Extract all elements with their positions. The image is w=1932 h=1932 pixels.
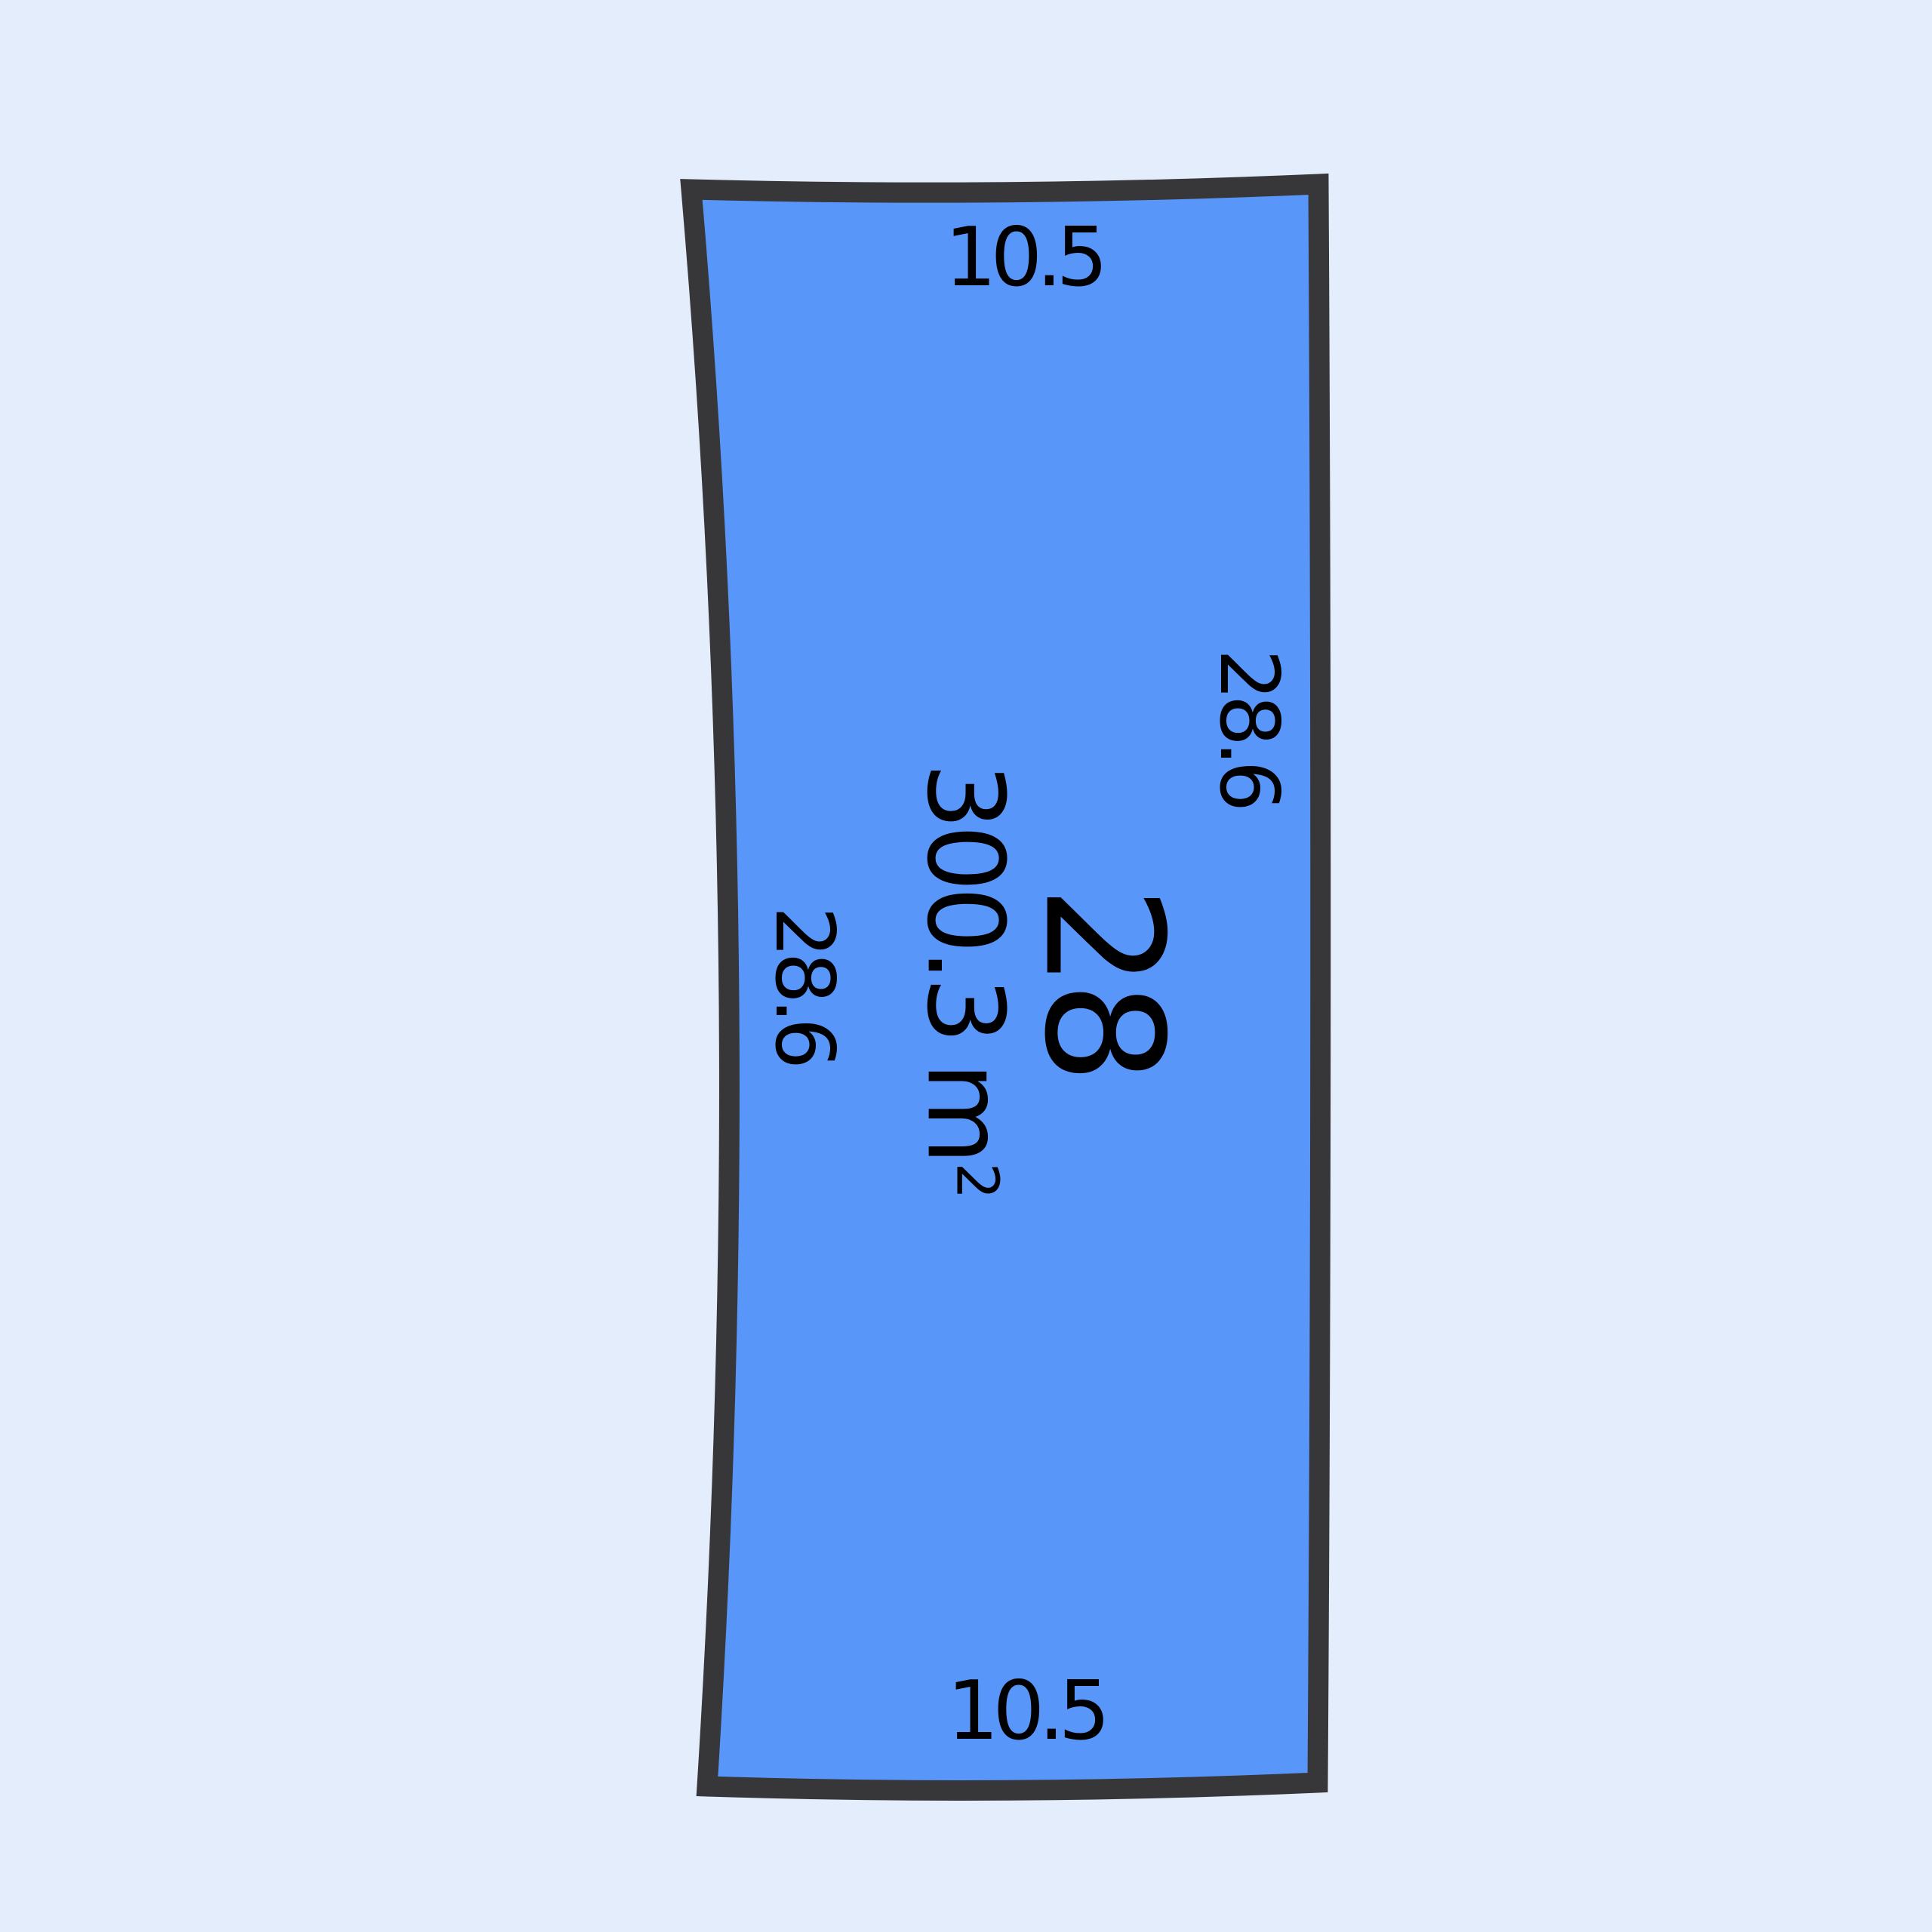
dimension-label-top: 10.5 [945, 217, 1102, 299]
lot-area: 300.3m2 [909, 763, 1020, 1200]
lot-area-unit: m [903, 1062, 1026, 1159]
dimension-label-left: 28.6 [763, 906, 844, 1063]
dimension-label-right: 28.6 [1207, 649, 1289, 806]
lot-plan-canvas: 10.5 28.6 28.6 10.5 28 300.3m2 [0, 0, 1932, 1932]
lot-label-block: 28 300.3m2 [909, 763, 1180, 1200]
lot-area-value: 300.3 [903, 763, 1026, 1039]
lot-number: 28 [1026, 763, 1180, 1200]
dimension-label-bottom: 10.5 [947, 1671, 1104, 1752]
lot-area-unit-exponent: 2 [943, 1162, 1011, 1199]
